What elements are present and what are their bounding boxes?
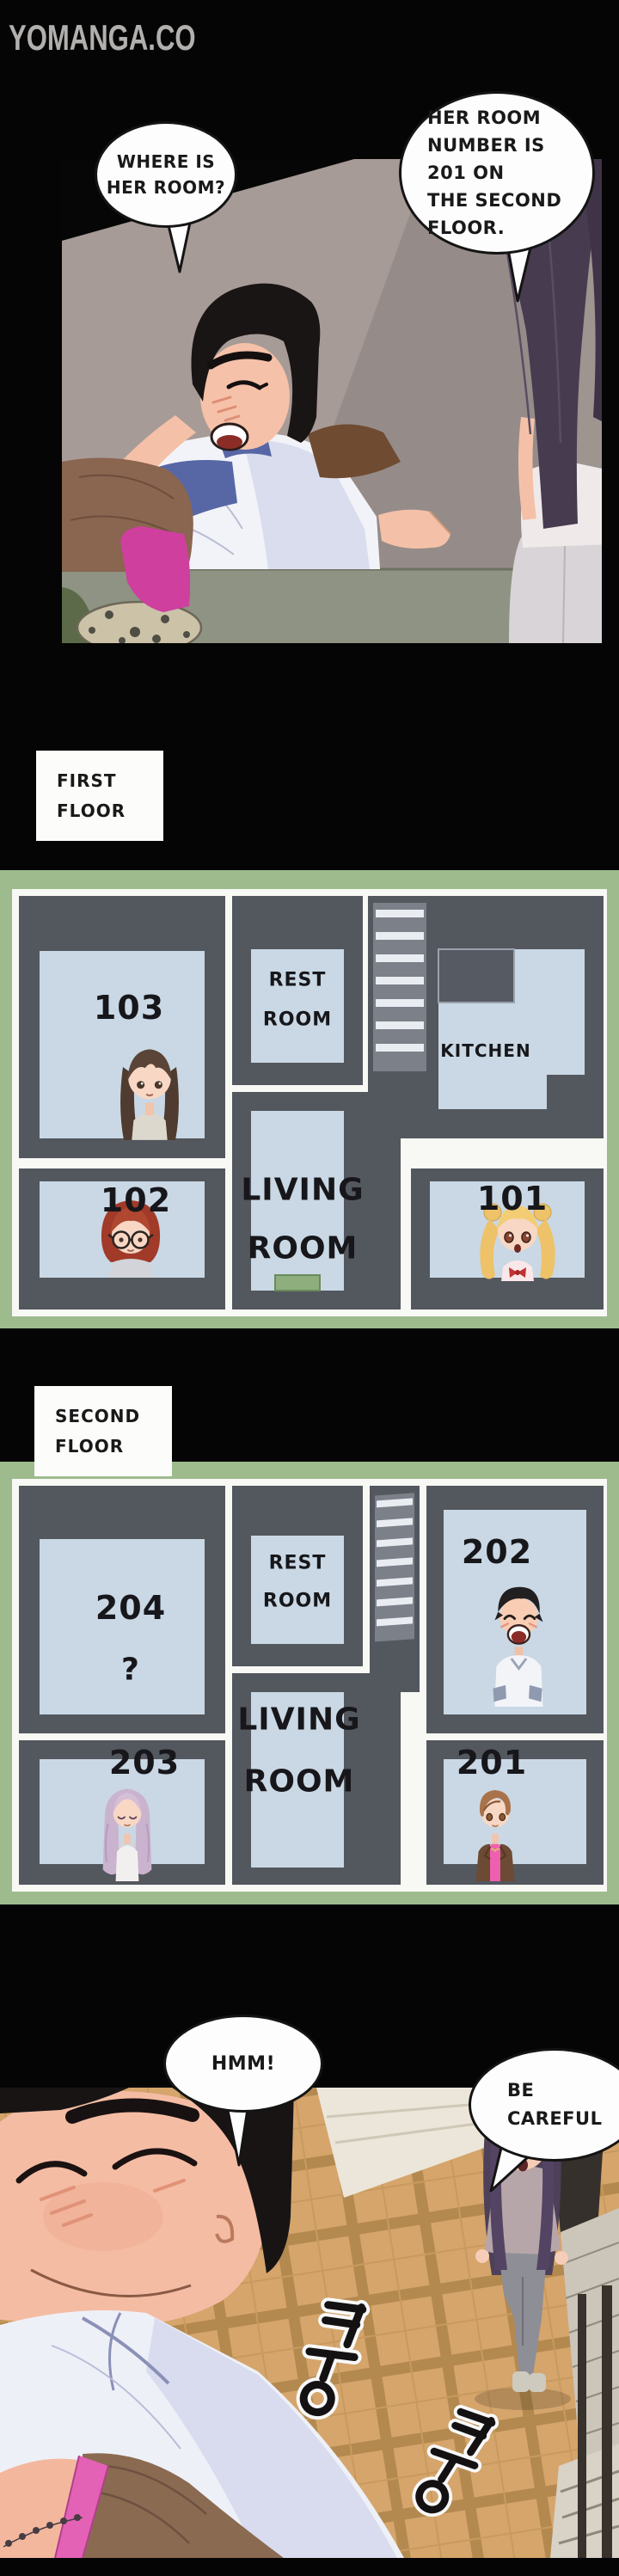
kitchen-label: KITCHEN [440,1040,530,1061]
bubble-room-info-line5: FLOOR. [427,214,505,242]
restroom-2-label-line2: ROOM [263,1591,332,1612]
room-203-label: 203 [109,1744,180,1782]
room-204-question-mark: ? [121,1653,140,1688]
living-room-2-label-line2: ROOM [244,1764,355,1800]
stairs-first-floor [373,903,426,1071]
bubble-hmm-text: HMM! [211,2053,275,2075]
speech-bubble-hmm: HMM! [163,2015,323,2113]
second-floor-line2: FLOOR [55,1432,172,1462]
living-room-1-label-line1: LIVING [241,1173,364,1208]
first-floor-line1: FIRST [57,766,163,796]
living-room-2-label-line1: LIVING [237,1702,360,1738]
restroom-2-label-line1: REST [269,1553,327,1574]
speech-bubble-where: WHERE IS HER ROOM? [95,121,237,228]
restroom-1-label-line1: REST [269,970,327,991]
entrance-mat [275,1275,320,1291]
room-201-label: 201 [457,1744,527,1782]
bubble-room-info-line4: THE SECOND [427,187,561,214]
bubble-room-info-line1: HER ROOM [427,104,541,132]
second-floor-line1: SECOND [55,1401,172,1432]
first-floor-line2: FLOOR [57,796,163,826]
manga-page: YOMANGA.CO [0,0,619,2576]
restroom-1-label-line2: ROOM [263,1009,332,1031]
room-101-label: 101 [477,1180,548,1217]
portrait-room-202-guy [478,1582,557,1707]
room-202-label: 202 [462,1533,532,1571]
living-room-1-label-line2: ROOM [248,1231,359,1267]
first-floor-label-box: FIRST FLOOR [36,751,163,841]
bubble-room-info-line2: NUMBER IS [427,132,545,159]
bubble-room-info-line3: 201 ON [427,159,505,187]
second-floor-label-box: SECOND FLOOR [34,1386,172,1476]
room-103-label: 103 [94,989,164,1027]
portrait-room-201-girl [452,1785,538,1881]
speech-bubble-room-info: HER ROOM NUMBER IS 201 ON THE SECOND FLO… [399,91,595,255]
bubble-where-line1: WHERE IS [117,149,215,175]
bubble-careful-line1: BE [507,2076,534,2105]
bubble-careful-line2: CAREFUL [507,2105,602,2133]
bubble-where-line2: HER ROOM? [107,175,225,200]
stairs-second-floor [375,1493,414,1641]
room-102-label: 102 [101,1181,171,1219]
site-logo: YOMANGA.CO [9,17,196,58]
portrait-room-203-girl [84,1785,170,1881]
portrait-room-103-girl [105,1040,194,1142]
room-204-label: 204 [95,1589,166,1627]
